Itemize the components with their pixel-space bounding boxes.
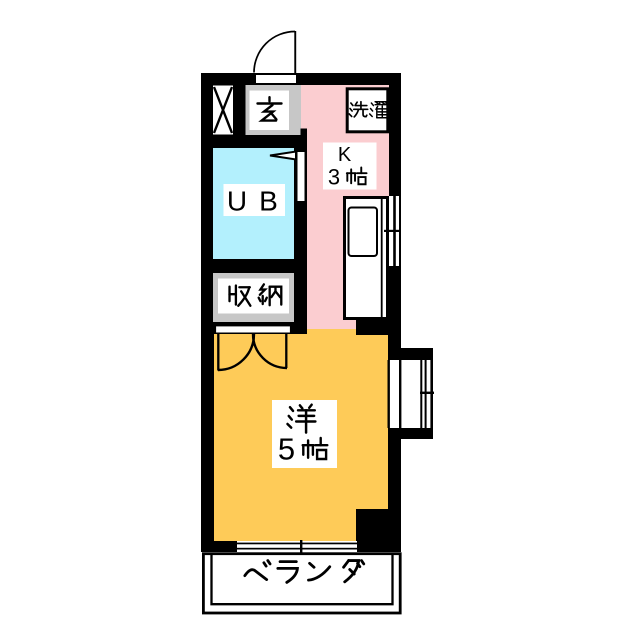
- svg-text:U: U: [227, 186, 247, 217]
- svg-text:3: 3: [328, 165, 340, 190]
- svg-text:B: B: [259, 186, 278, 217]
- svg-text:K: K: [338, 144, 352, 166]
- svg-text:5: 5: [278, 432, 295, 467]
